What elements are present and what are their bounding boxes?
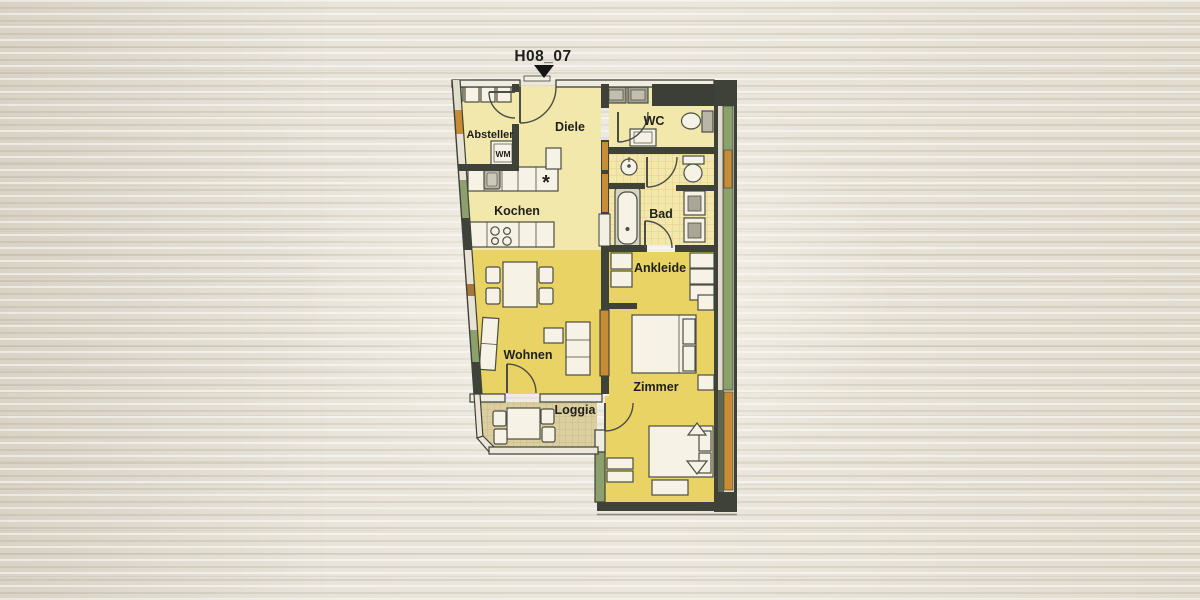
room-label-diele: Diele [555, 120, 585, 134]
bathroom-washbasin-2 [684, 218, 705, 242]
bathroom-washbasin-1 [684, 191, 705, 215]
bed-double [632, 315, 696, 373]
room-label-wc: WC [644, 114, 665, 128]
wall-top-left [452, 80, 520, 87]
kitchen-tall-cabinet [546, 148, 561, 169]
coffee-table [544, 328, 563, 343]
sofa [566, 322, 590, 375]
freezer-symbol: * [542, 172, 550, 194]
absteller-cabinets [454, 87, 511, 102]
kitchen-counter-lower [470, 222, 554, 247]
bathtub [615, 188, 640, 248]
washing-machine-label: WM [495, 149, 510, 159]
room-label-wohnen: Wohnen [503, 348, 552, 362]
room-label-bad: Bad [649, 207, 673, 221]
shaft-block [652, 84, 714, 106]
wall-bottom [597, 502, 737, 511]
sliding-door-panel [600, 310, 609, 376]
nightstand-lower [698, 375, 714, 390]
bathroom-toilet [683, 156, 704, 182]
room-label-loggia: Loggia [555, 403, 597, 417]
nightstand-upper [698, 295, 714, 310]
bed-bench [652, 480, 688, 495]
bed-second [649, 423, 713, 477]
room-label-absteller: Absteller [466, 129, 514, 141]
wall-loggia-right-of-door [540, 394, 602, 402]
plan-title: H08_07 [514, 48, 571, 65]
wall-lower-green [595, 452, 605, 502]
scanned-floor-plan-page: H08_07 Absteller Diele WC Kochen Bad Ank… [0, 0, 1200, 600]
entrance-threshold [524, 76, 550, 81]
room-label-zimmer: Zimmer [633, 380, 678, 394]
floor-plan-drawing: H08_07 Absteller Diele WC Kochen Bad Ank… [0, 0, 1200, 600]
tv-sideboard [479, 317, 499, 370]
room-label-ankleide: Ankleide [634, 261, 686, 275]
room-label-kochen: Kochen [494, 204, 540, 218]
wall-right [714, 80, 737, 512]
